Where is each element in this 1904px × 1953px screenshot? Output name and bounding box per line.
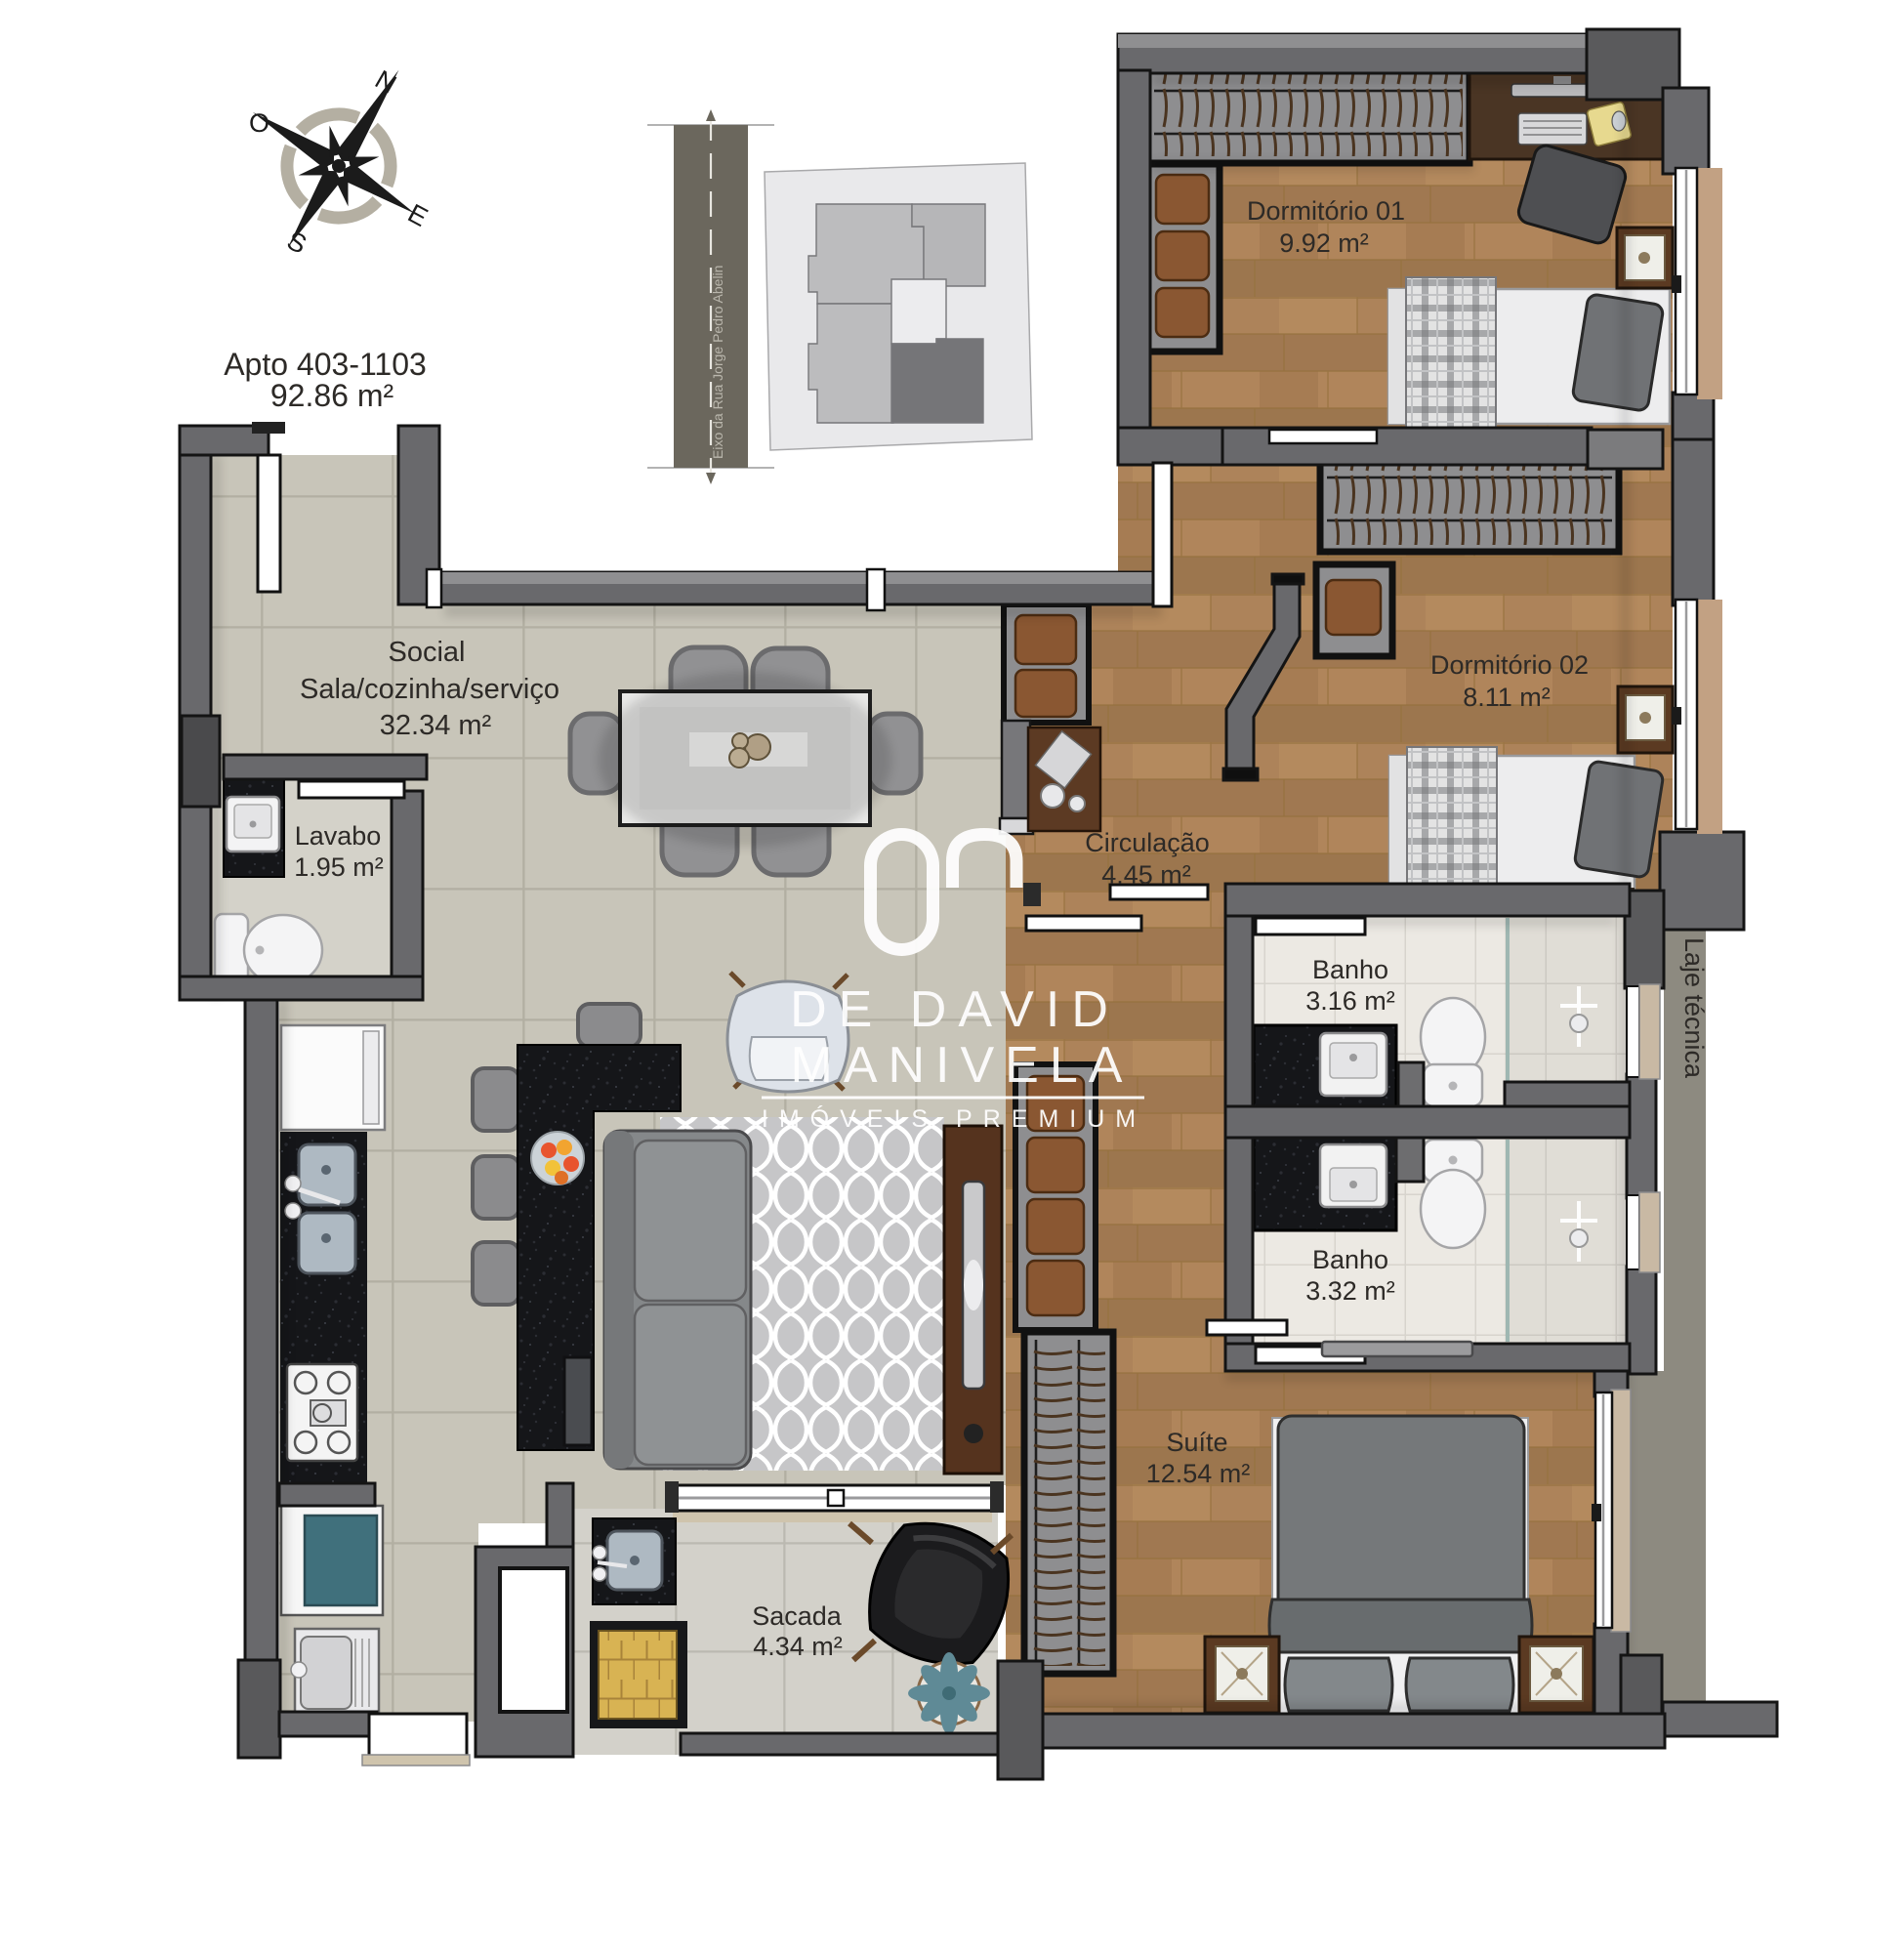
svg-text:12.54 m²: 12.54 m² <box>1146 1459 1251 1488</box>
svg-text:8.11 m²: 8.11 m² <box>1463 683 1551 712</box>
svg-text:92.86 m²: 92.86 m² <box>270 378 394 413</box>
svg-text:O: O <box>249 108 269 138</box>
svg-text:Lavabo: Lavabo <box>295 821 382 851</box>
svg-text:Circulação: Circulação <box>1085 828 1210 857</box>
svg-text:4.45 m²: 4.45 m² <box>1101 860 1191 890</box>
svg-text:3.16 m²: 3.16 m² <box>1305 986 1395 1016</box>
svg-text:32.34 m²: 32.34 m² <box>380 710 492 741</box>
svg-text:DE DAVID: DE DAVID <box>790 981 1120 1038</box>
svg-text:Eixo da Rua Jorge Pedro Abelin: Eixo da Rua Jorge Pedro Abelin <box>710 266 725 459</box>
svg-text:Sacada: Sacada <box>752 1601 843 1631</box>
svg-text:Banho: Banho <box>1312 1245 1388 1274</box>
svg-text:3.32 m²: 3.32 m² <box>1305 1276 1395 1306</box>
svg-text:Social: Social <box>389 637 466 668</box>
svg-text:Sala/cozinha/serviço: Sala/cozinha/serviço <box>300 674 559 705</box>
svg-text:9.92 m²: 9.92 m² <box>1279 229 1369 258</box>
svg-text:Laje técnica: Laje técnica <box>1679 937 1709 1079</box>
svg-text:Apto 403-1103: Apto 403-1103 <box>224 347 427 382</box>
svg-text:4.34 m²: 4.34 m² <box>753 1632 843 1661</box>
svg-text:Suíte: Suíte <box>1166 1428 1227 1457</box>
svg-text:Dormitório 02: Dormitório 02 <box>1430 650 1589 680</box>
svg-text:MANIVELA: MANIVELA <box>791 1037 1134 1094</box>
svg-text:IMÓVEIS PREMIUM: IMÓVEIS PREMIUM <box>762 1104 1146 1133</box>
svg-text:1.95 m²: 1.95 m² <box>294 852 384 882</box>
svg-text:Dormitório 01: Dormitório 01 <box>1247 196 1405 226</box>
svg-text:Banho: Banho <box>1312 955 1388 984</box>
